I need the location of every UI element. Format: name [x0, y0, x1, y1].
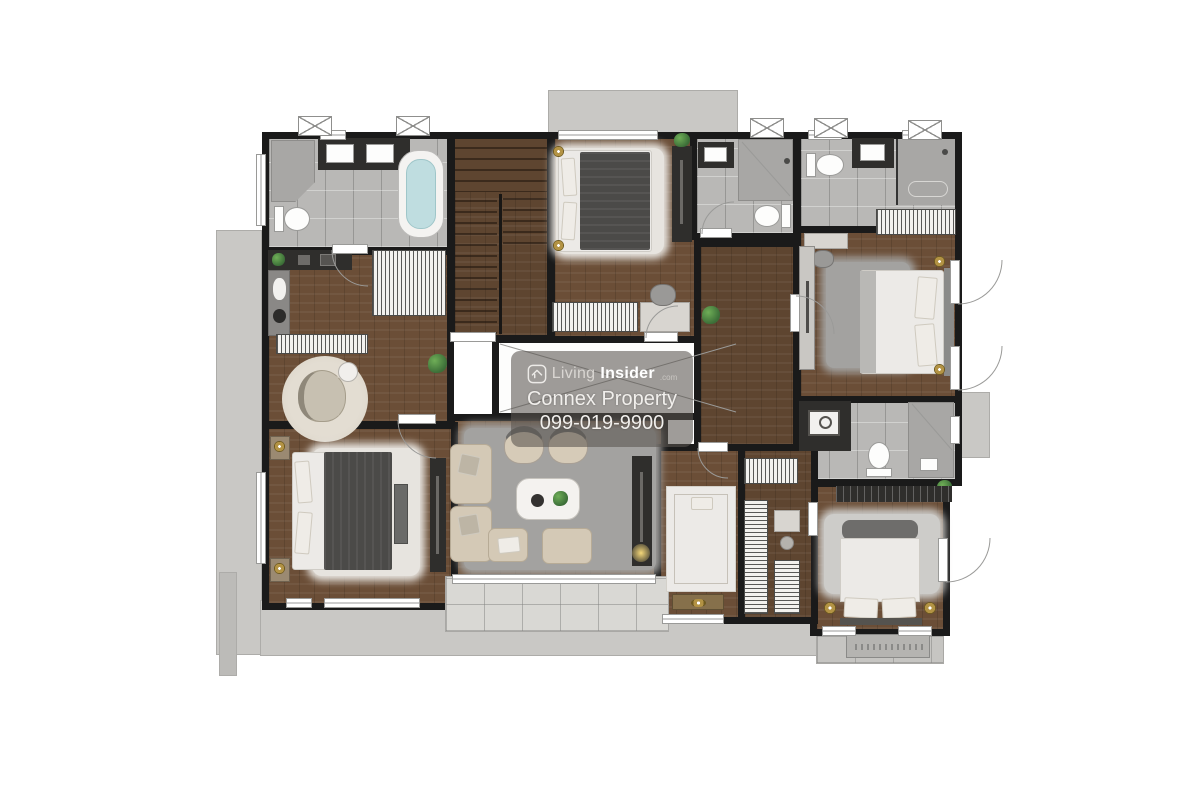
desk-chair — [812, 250, 834, 268]
side-table — [338, 362, 358, 382]
toilet — [274, 206, 284, 232]
lamp — [274, 441, 285, 452]
bed — [840, 538, 920, 602]
cabinet — [799, 246, 815, 370]
shower — [896, 139, 955, 205]
double-vanity — [318, 138, 410, 170]
ac-unit — [846, 634, 930, 658]
bed-bench — [394, 484, 408, 544]
toilet — [806, 153, 816, 177]
toilet-bowl — [816, 154, 844, 176]
window — [256, 472, 266, 564]
wetbar-side-counter — [268, 270, 290, 336]
lamp — [553, 146, 564, 157]
wardrobe — [372, 250, 446, 316]
ottoman — [488, 528, 528, 562]
console-shelf — [836, 486, 952, 502]
wardrobe — [876, 209, 956, 235]
armchair — [298, 370, 346, 422]
blanket — [860, 271, 876, 373]
pillow — [914, 323, 938, 367]
vanity — [698, 142, 734, 168]
bed-bench — [672, 594, 724, 610]
door-opening — [698, 442, 728, 452]
toilet-bowl — [284, 207, 310, 231]
watermark-company: Connex Property — [527, 388, 677, 411]
living-insider-logo-icon — [527, 364, 547, 384]
sink — [366, 144, 394, 163]
desk — [640, 302, 690, 332]
sink — [326, 144, 354, 163]
floor-plan: LivingInsider.com Connex Property 099-01… — [0, 0, 1200, 800]
plant — [428, 354, 447, 373]
stool — [780, 536, 794, 550]
coffee-table — [516, 478, 580, 520]
lamp — [924, 602, 936, 614]
sink — [920, 458, 938, 471]
watermark: LivingInsider.com Connex Property 099-01… — [511, 351, 693, 447]
lamp-glow — [632, 544, 650, 562]
pillow — [561, 202, 578, 241]
brand-insider: Insider — [600, 365, 655, 383]
toilet — [866, 468, 892, 477]
bed — [666, 486, 736, 592]
shower-head — [942, 149, 948, 155]
door-opening — [332, 244, 368, 254]
closet-rail — [774, 560, 800, 614]
tv-console — [430, 458, 446, 572]
duvet — [580, 152, 650, 250]
pillow — [914, 276, 938, 320]
coffee-maker — [273, 309, 286, 323]
stair-flight-left — [455, 196, 497, 334]
plant — [272, 253, 285, 266]
door-opening — [644, 332, 678, 342]
pillow — [881, 597, 916, 619]
window-symbol — [814, 118, 848, 138]
sofa-chaise — [450, 444, 492, 504]
closet-rail — [744, 500, 768, 614]
headboard — [840, 618, 922, 625]
window-symbol — [750, 118, 784, 138]
lamp — [934, 256, 945, 267]
plant — [702, 306, 720, 324]
door-opening — [398, 414, 436, 424]
sink — [704, 147, 727, 162]
door-opening — [790, 294, 800, 332]
window-symbol — [908, 120, 942, 140]
bowl — [691, 599, 706, 607]
toilet-bowl — [868, 442, 890, 469]
door-opening — [450, 332, 496, 342]
brand-row: LivingInsider.com — [527, 364, 678, 384]
door-opening — [938, 538, 948, 582]
door-opening — [700, 228, 732, 238]
window — [256, 154, 266, 226]
bathtub — [398, 150, 444, 238]
staircase — [448, 132, 554, 200]
window — [286, 598, 312, 608]
brand-living: Living — [552, 365, 596, 383]
laundry-cabinet — [799, 401, 851, 451]
pillow — [691, 497, 713, 510]
blanket-roll — [842, 520, 918, 540]
shower-tray — [908, 181, 948, 197]
bar-sink — [273, 278, 286, 300]
door-opening — [950, 260, 960, 304]
toilet-bowl — [754, 205, 780, 227]
shower — [738, 139, 793, 201]
master-bed-headboard — [280, 450, 292, 572]
plant — [553, 491, 568, 506]
lamp — [824, 602, 836, 614]
door-opening — [950, 416, 960, 444]
bookshelf — [552, 302, 638, 332]
closet-shelf — [744, 458, 798, 484]
window-symbol — [396, 116, 430, 136]
window — [898, 626, 932, 636]
stair-flight-right — [503, 196, 547, 244]
tv-cabinet — [672, 146, 692, 242]
stair-railing — [499, 194, 502, 334]
corridor — [694, 240, 800, 470]
desk-chair — [650, 284, 676, 306]
vanity — [852, 138, 894, 168]
terrace-left-fin — [219, 572, 237, 676]
brand-tld: .com — [660, 373, 677, 382]
sliding-door — [452, 574, 656, 584]
lamp — [934, 364, 945, 375]
pillow — [561, 158, 578, 197]
sofa — [450, 506, 492, 562]
window — [662, 614, 724, 624]
window-symbol — [298, 116, 332, 136]
window — [822, 626, 856, 636]
washer — [808, 410, 840, 436]
ottoman — [542, 528, 592, 564]
lamp — [553, 240, 564, 251]
pillow — [843, 597, 878, 619]
door-opening — [808, 502, 818, 536]
door-opening — [950, 346, 960, 390]
sink — [860, 144, 885, 161]
plant — [674, 133, 690, 147]
window — [324, 598, 420, 608]
shower-head — [784, 158, 790, 164]
ledge-right — [958, 392, 990, 458]
bowl — [531, 494, 544, 507]
vanity-table — [774, 510, 800, 532]
balcony-living — [445, 576, 669, 632]
duvet — [324, 452, 392, 570]
window — [558, 130, 658, 140]
toilet — [781, 204, 791, 228]
watermark-phone: 099-019-9900 — [540, 412, 665, 435]
lamp — [274, 563, 285, 574]
wardrobe — [276, 334, 368, 354]
